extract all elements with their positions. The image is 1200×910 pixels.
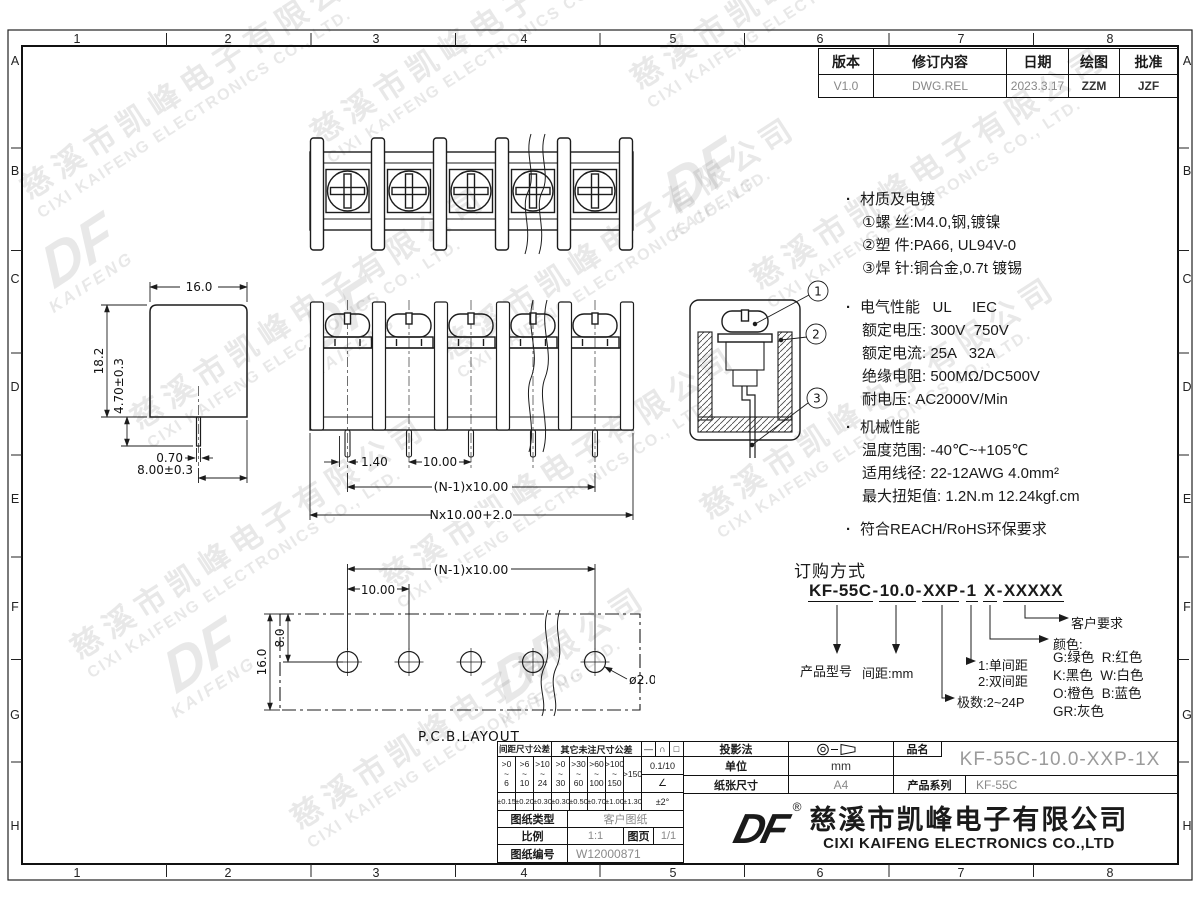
note-line: 最大扭矩值: 1.2N.m 12.24kgf.cm — [846, 485, 1080, 508]
revision-version: V1.0 — [818, 74, 873, 98]
revision-drawn-by: ZZM — [1068, 74, 1119, 98]
grid-row-label: C — [1180, 272, 1194, 286]
label-customer-req: 客户要求 — [1071, 613, 1123, 632]
electrical-notes: ·电气性能 UL IEC 额定电压: 300V 750V 额定电流: 25A 3… — [846, 296, 1040, 411]
dim-pin-offset: 8.00±0.3 — [137, 463, 193, 477]
tol-range: >30 ~ 60 — [570, 757, 588, 793]
front-view-drawing: 1.40 10.00 (N-1)x10.00 Nx10.00+2.0 — [295, 290, 670, 558]
material-title: ·材质及电镀 — [846, 188, 1022, 211]
pcb-layout-drawing: (N-1)x10.00 10.00 8.0 16.0 ø2.0 P.C.B.LA… — [255, 550, 655, 750]
grid-row-label: B — [8, 164, 22, 178]
revision-header: 绘图 — [1068, 48, 1119, 74]
color-option: K:黑色 W:白色 — [1053, 668, 1144, 683]
dim-total: Nx10.00+2.0 — [430, 507, 513, 522]
compliance-title: ·符合REACH/RoHS环保要求 — [846, 518, 1047, 541]
grid-col-label: 7 — [951, 866, 971, 880]
note-line: 额定电流: 25A 32A — [846, 342, 1040, 365]
revision-header: 批准 — [1119, 48, 1178, 74]
grid-row-label: H — [1180, 819, 1194, 833]
top-view-drawing — [295, 128, 670, 260]
tol-range: >10 ~ 24 — [534, 757, 552, 793]
hatched-walls — [698, 332, 792, 432]
tol-range: >0 ~ 30 — [552, 757, 570, 793]
projection-label: 投影法 — [684, 742, 789, 757]
angle-symbol: ∠ — [642, 775, 684, 793]
company-name-en: CIXI KAIFENG ELECTRONICS CO.,LTD — [809, 835, 1128, 853]
grid-col-label: 3 — [366, 32, 386, 46]
page-value: 1/1 — [654, 828, 684, 845]
dim-offset: 1.40 — [361, 455, 388, 469]
drawing-number-value: W12000871 — [568, 845, 684, 863]
grid-col-label: 8 — [1100, 32, 1120, 46]
tol-value: ±0.70 — [588, 793, 606, 811]
company-names: 慈溪市凯峰电子有限公司 CIXI KAIFENG ELECTRONICS CO.… — [809, 805, 1128, 853]
scale-label: 比例 — [498, 828, 568, 845]
dim-pitch: 10.00 — [361, 583, 395, 597]
symbol-straightness: — — [642, 742, 656, 757]
scale-value: 1:1 — [568, 828, 624, 845]
paper-size-label: 纸张尺寸 — [684, 776, 789, 794]
tol-value: ±0.50 — [570, 793, 588, 811]
callout-2: 2 — [812, 328, 820, 342]
revision-header: 修订内容 — [873, 48, 1006, 74]
tol-other-header: 其它未注尺寸公差 — [552, 742, 642, 757]
mechanical-notes: ·机械性能 温度范围: -40℃~+105℃ 适用线径: 22-12AWG 4.… — [846, 416, 1080, 508]
grid-col-label: 3 — [366, 866, 386, 880]
callout-1: 1 — [814, 285, 822, 299]
electrical-title: ·电气性能 UL IEC — [846, 296, 1040, 319]
compliance-note: ·符合REACH/RoHS环保要求 — [846, 518, 1047, 541]
revision-header: 日期 — [1006, 48, 1068, 74]
note-line: ②塑 件:PA66, UL94V-0 — [846, 234, 1022, 257]
grid-row-label: F — [8, 600, 22, 614]
grid-row-label: G — [8, 708, 22, 722]
note-line: ③焊 针:铜合金,0.7t 镀锡 — [846, 257, 1022, 280]
ordering-section: 订购方式 KF-55C-10.0-XXP-1 X-XXXXX 产品型号 间距:m… — [790, 553, 1190, 728]
label-poles: 极数:2~24P — [957, 692, 1025, 711]
symbol-flatness: □ — [670, 742, 684, 757]
note-line: 温度范围: -40℃~+105℃ — [846, 439, 1080, 462]
revision-approved-by: JZF — [1119, 74, 1178, 98]
side-view-drawing: 16.0 18.2 4.70±0.3 0.70 8.00±0.3 — [85, 278, 300, 513]
dim-depth: 16.0 — [255, 649, 269, 676]
color-option: GR:灰色 — [1053, 704, 1104, 719]
grid-row-label: E — [1180, 492, 1194, 506]
grid-row-label: A — [8, 54, 22, 68]
kaifeng-logo: DF — [729, 808, 789, 850]
grid-col-label: 2 — [218, 866, 238, 880]
tol-value: ±0.30 — [552, 793, 570, 811]
symbol-curvature: ∩ — [656, 742, 670, 757]
note-line: 适用线径: 22-12AWG 4.0mm² — [846, 462, 1080, 485]
page-label: 图页 — [624, 828, 654, 845]
grid-col-label: 2 — [218, 32, 238, 46]
mounting-holes — [333, 648, 610, 676]
tol-value: ±1.30 — [624, 793, 642, 811]
dim-pitch: 10.00 — [423, 455, 457, 469]
note-line: 额定电压: 300V 750V — [846, 319, 1040, 342]
mechanical-title: ·机械性能 — [846, 416, 1080, 439]
housing-front — [310, 348, 633, 430]
grid-col-label: 8 — [1100, 866, 1120, 880]
tol-range: >100 ~ 150 — [606, 757, 624, 793]
grid-col-label: 5 — [663, 32, 683, 46]
grid-col-label: 4 — [514, 32, 534, 46]
grid-row-label: H — [8, 819, 22, 833]
grid-col-label: 1 — [67, 866, 87, 880]
grid-row-label: D — [1180, 380, 1194, 394]
company-banner: DF ® 慈溪市凯峰电子有限公司 CIXI KAIFENG ELECTRONIC… — [684, 794, 1179, 863]
tol-pitch-header: 间距尺寸公差 — [498, 742, 552, 757]
revision-header: 版本 — [818, 48, 873, 74]
color-option: G:绿色 R:红色 — [1053, 650, 1142, 665]
tol-range: >60 ~ 100 — [588, 757, 606, 793]
revision-content: DWG.REL — [873, 74, 1006, 98]
tol-range: >6 ~ 10 — [516, 757, 534, 793]
screw-section — [718, 310, 772, 386]
bullet-icon: · — [846, 188, 860, 211]
label-double-row: 2:双间距 — [978, 671, 1028, 690]
tol-value: ±1.00 — [606, 793, 624, 811]
dimensions — [264, 564, 627, 710]
note-line: 耐电压: AC2000V/Min — [846, 388, 1040, 411]
label-product-model: 产品型号 — [800, 661, 852, 680]
callout-3: 3 — [813, 392, 821, 406]
grid-row-label: A — [1180, 54, 1194, 68]
tol-value: ±0.20 — [516, 793, 534, 811]
screw-terminals — [326, 170, 617, 213]
first-angle-projection-icon — [815, 743, 867, 756]
grid-row-label: E — [8, 492, 22, 506]
dim-span: (N-1)x10.00 — [434, 562, 509, 577]
company-name-cn: 慈溪市凯峰电子有限公司 — [809, 805, 1128, 835]
paper-size-value: A4 — [789, 776, 894, 794]
dim-width: 16.0 — [186, 280, 213, 294]
section-view-drawing: 1 2 3 — [678, 262, 863, 467]
bullet-icon: · — [846, 518, 860, 541]
product-name-value: KF-55C-10.0-XXP-1X — [942, 745, 1178, 775]
angle-tol-value: ±2° — [642, 793, 684, 811]
grid-col-label: 7 — [951, 32, 971, 46]
dim-height: 18.2 — [92, 348, 106, 375]
tol-range: >0 ~ 6 — [498, 757, 516, 793]
grid-col-label: 6 — [810, 32, 830, 46]
drawing-type-label: 图纸类型 — [498, 811, 568, 828]
dim-span: (N-1)x10.00 — [434, 479, 509, 494]
technical-notes: ·材质及电镀 ①螺 丝:M4.0,钢,镀镍 ②塑 件:PA66, UL94V-0… — [846, 182, 1178, 552]
note-line: 绝缘电阻: 500MΩ/DC500V — [846, 365, 1040, 388]
grid-row-label: D — [8, 380, 22, 394]
grid-row-label: B — [1180, 164, 1194, 178]
bullet-icon: · — [846, 416, 860, 439]
tol-value: ±0.30 — [534, 793, 552, 811]
grid-col-label: 1 — [67, 32, 87, 46]
dim-row: 8.0 — [273, 628, 287, 647]
product-series-value: KF-55C — [966, 776, 1179, 794]
grid-row-label: C — [8, 272, 22, 286]
grid-col-label: 4 — [514, 866, 534, 880]
drawing-number-label: 图纸编号 — [498, 845, 568, 863]
projection-symbol — [789, 742, 894, 757]
revision-table: 版本 修订内容 日期 绘图 批准 V1.0 DWG.REL 2023.3.17 … — [818, 48, 1178, 98]
tol-range: >150 — [624, 757, 642, 793]
product-series-label: 产品系列 — [894, 776, 966, 794]
revision-date: 2023.3.17 — [1006, 74, 1068, 98]
unit-label: 单位 — [684, 757, 789, 776]
title-block: 间距尺寸公差 其它未注尺寸公差 — ∩ □ >0 ~ 6 >6 ~ 10 >10… — [497, 741, 1178, 864]
label-pitch: 间距:mm — [862, 663, 913, 682]
registered-mark-icon: ® — [793, 800, 802, 814]
grid-col-label: 6 — [810, 866, 830, 880]
material-notes: ·材质及电镀 ①螺 丝:M4.0,钢,镀镍 ②塑 件:PA66, UL94V-0… — [846, 188, 1022, 280]
dim-hole-diameter: ø2.0 — [629, 672, 655, 687]
unit-value: mm — [789, 757, 894, 776]
drawing-type-value: 客户图纸 — [568, 811, 684, 828]
tol-value: ±0.15 — [498, 793, 516, 811]
bullet-icon: · — [846, 296, 860, 319]
dim-pin-length: 4.70±0.3 — [112, 358, 126, 414]
note-line: ①螺 丝:M4.0,钢,镀镍 — [846, 211, 1022, 234]
grid-col-label: 5 — [663, 866, 683, 880]
flatness-tol: 0.1/10 — [642, 757, 684, 775]
color-option: O:橙色 B:蓝色 — [1053, 686, 1142, 701]
